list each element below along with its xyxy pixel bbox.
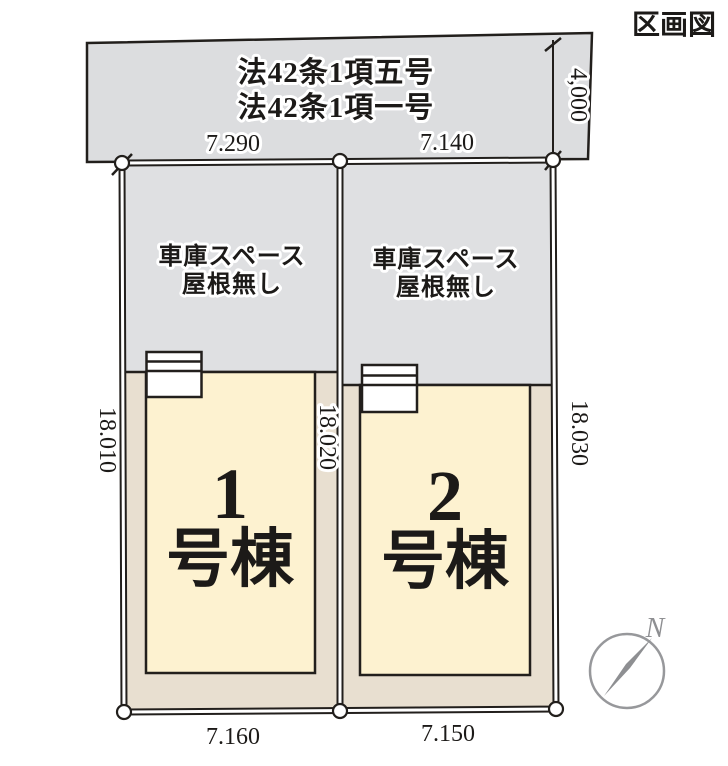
lot1-garage-label-line2: 屋根無し	[182, 270, 282, 298]
building1-porch	[147, 352, 202, 397]
dim-middle: 18.020	[314, 404, 340, 470]
dim-left-side: 18.010	[94, 407, 120, 473]
building2-number: 2	[427, 456, 463, 536]
building2-porch	[362, 365, 417, 412]
dim-lot1-top: 7.290	[206, 131, 260, 157]
north-needle-icon	[604, 638, 652, 696]
plot-map-page: N 区画図 法42条1項五号 法42条1項一号 7.290 7.140 7.16…	[0, 0, 728, 766]
building1-number: 1	[212, 454, 248, 534]
building1-suffix: 号棟	[166, 524, 295, 595]
compass-icon: N	[590, 613, 666, 708]
lot1-garage-label-line1: 車庫スペース	[158, 243, 305, 270]
building2-suffix: 号棟	[381, 526, 510, 597]
lot2-garage-label-line1: 車庫スペース	[372, 246, 519, 273]
road-law-text-line2: 法42条1項一号	[238, 91, 435, 124]
dim-lot1-bottom: 7.160	[206, 724, 260, 750]
lot2-garage-label-line2: 屋根無し	[396, 273, 496, 301]
dim-road-width: 4,000	[565, 68, 591, 122]
dim-right-side: 18.030	[566, 400, 592, 466]
dim-lot2-top: 7.140	[420, 130, 474, 156]
compass-north-label: N	[645, 613, 666, 644]
dim-lot2-bottom: 7.150	[421, 721, 475, 747]
drawing-root	[87, 33, 592, 719]
road-law-text-line1: 法42条1項五号	[238, 56, 435, 89]
page-title: 区画図	[632, 9, 716, 40]
plot-map-drawing: N 区画図 法42条1項五号 法42条1項一号 7.290 7.140 7.16…	[0, 0, 728, 766]
